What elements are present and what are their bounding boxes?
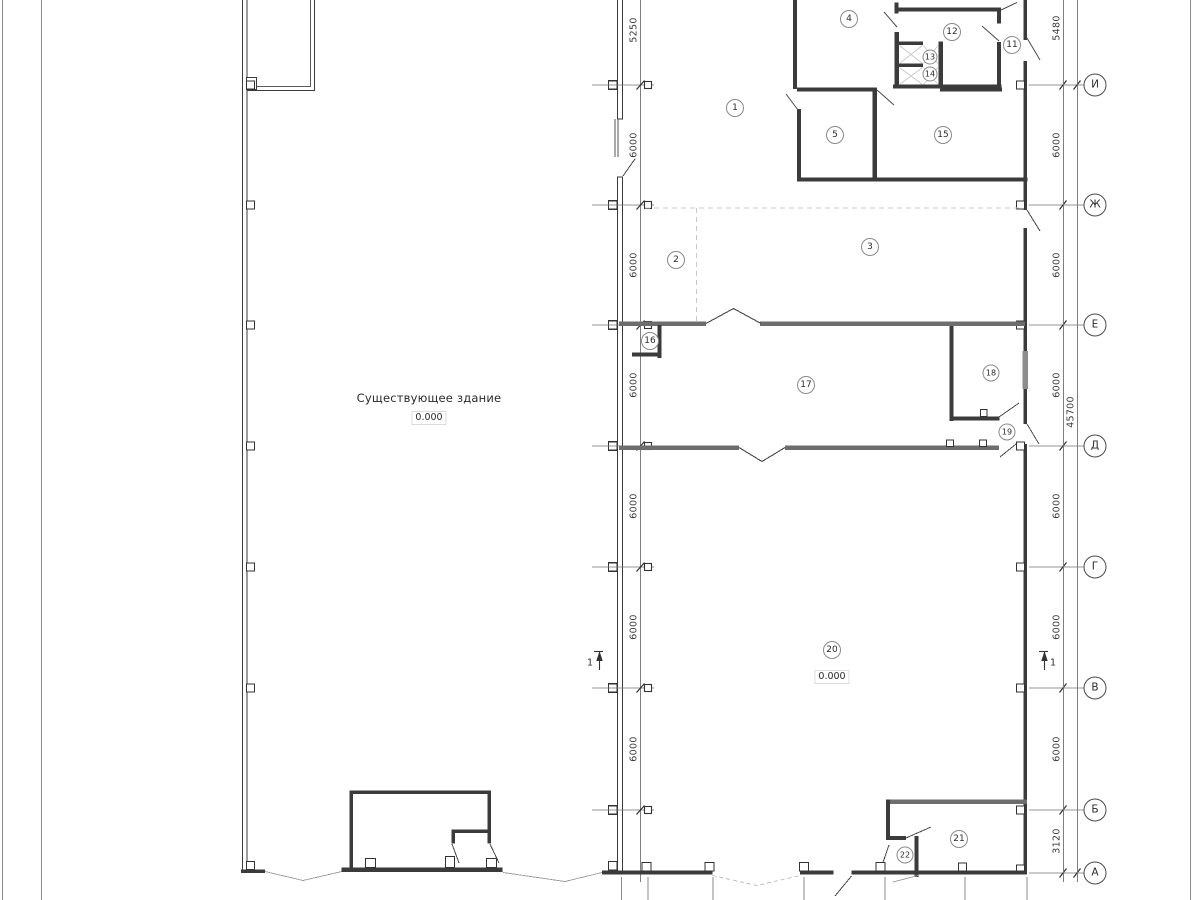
axis-label-Е: Е — [1084, 314, 1107, 337]
dim-right-5: 6000 — [1052, 613, 1063, 640]
section-mark-label-left: 1 — [587, 658, 593, 669]
axis-label-И: И — [1084, 74, 1107, 97]
left-wall-group — [241, 0, 342, 881]
hall-level: 0.000 — [814, 670, 849, 684]
top-rooms-walls — [793, 0, 1028, 182]
axis-label-Ж: Ж — [1084, 194, 1107, 217]
dim-right-4: 6000 — [1052, 492, 1063, 519]
room-number-16: 16 — [641, 332, 659, 350]
section-mark-right — [1039, 651, 1048, 670]
axis-label-Д: Д — [1084, 435, 1107, 458]
room-number-19: 19 — [999, 424, 1016, 441]
dim-right-6: 6000 — [1052, 735, 1063, 762]
dim-left-5: 6000 — [629, 613, 640, 640]
dim-right-0: 5480 — [1052, 14, 1063, 41]
drawing-sheet: 12345111213141516171819202122 ИЖЕДГВБА 5… — [0, 0, 1200, 900]
dim-left-2: 6000 — [629, 251, 640, 278]
dim-right-1: 6000 — [1052, 131, 1063, 158]
sheet-frame — [3, 0, 1191, 900]
room-number-18: 18 — [983, 365, 1000, 382]
dim-left-3: 6000 — [629, 371, 640, 398]
dim-right-2: 6000 — [1052, 251, 1063, 278]
room-number-15: 15 — [934, 126, 952, 144]
axis-label-Б: Б — [1084, 799, 1107, 822]
axis-label-Г: Г — [1084, 556, 1107, 579]
dim-left-1: 6000 — [629, 131, 640, 158]
room-number-14: 14 — [923, 67, 938, 82]
bottom-wall — [602, 863, 1027, 900]
room-number-3: 3 — [861, 238, 879, 256]
room-number-13: 13 — [923, 50, 938, 65]
room-number-1: 1 — [726, 99, 744, 117]
room-number-5: 5 — [826, 126, 844, 144]
dim-left-0: 5250 — [629, 16, 640, 43]
room-number-2: 2 — [667, 251, 685, 269]
zone-boundary-dashed — [645, 208, 1022, 321]
room-number-12: 12 — [943, 23, 961, 41]
right-outer-wall — [1017, 0, 1041, 873]
dim-overall-45700: 45700 — [1066, 395, 1077, 429]
dim-left-4: 6000 — [629, 492, 640, 519]
row-e-walls — [619, 309, 1025, 458]
existing-building-label: Существующее здание — [357, 391, 502, 405]
section-mark-label-right: 1 — [1050, 658, 1056, 669]
axis-label-А: А — [1084, 862, 1107, 885]
row-d-walls — [619, 440, 999, 462]
room-number-21: 21 — [950, 830, 968, 848]
room-number-22: 22 — [897, 847, 914, 864]
dim-left-6: 6000 — [629, 735, 640, 762]
existing-building-level: 0.000 — [411, 411, 446, 425]
dock-structure — [342, 791, 603, 882]
axis-label-В: В — [1084, 677, 1107, 700]
section-mark-left — [594, 651, 603, 670]
room-number-11: 11 — [1003, 36, 1021, 54]
room-number-4: 4 — [840, 10, 858, 28]
room-number-20: 20 — [823, 641, 841, 659]
dim-right-3: 6000 — [1052, 371, 1063, 398]
floorplan-linework — [0, 0, 1200, 900]
dim-right-7: 3120 — [1052, 827, 1063, 854]
room-number-17: 17 — [797, 376, 815, 394]
